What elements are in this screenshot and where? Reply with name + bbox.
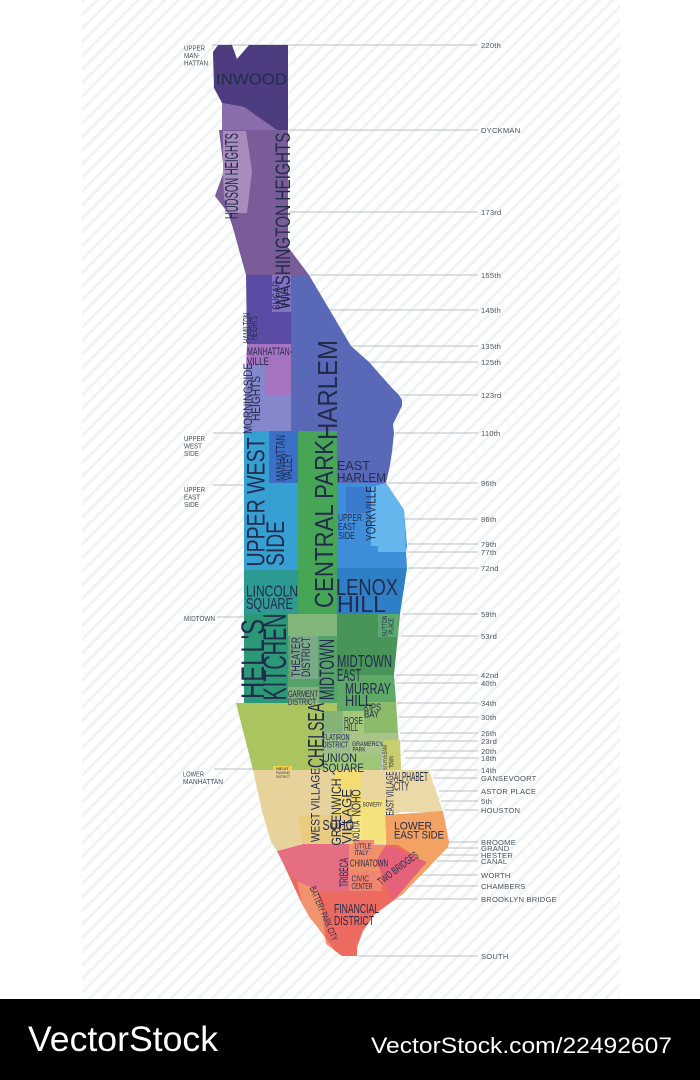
svg-text:WEST VILLAGE: WEST VILLAGE [310, 768, 323, 842]
svg-text:59th: 59th [481, 610, 497, 619]
svg-text:DYCKMAN: DYCKMAN [481, 126, 520, 135]
svg-text:SIDE: SIDE [184, 451, 199, 458]
svg-text:INWOOD: INWOOD [216, 72, 287, 89]
svg-text:EAST: EAST [184, 495, 201, 502]
svg-text:TRIBECA: TRIBECA [337, 858, 351, 887]
svg-text:SQUARE: SQUARE [322, 761, 364, 775]
svg-text:30th: 30th [481, 713, 497, 722]
svg-text:TOWN: TOWN [389, 756, 396, 768]
svg-text:72nd: 72nd [481, 564, 499, 573]
svg-text:SQUARE: SQUARE [246, 596, 293, 613]
svg-text:110th: 110th [481, 429, 500, 438]
svg-text:BAY: BAY [364, 709, 379, 721]
svg-text:VectorStock.com/22492607: VectorStock.com/22492607 [371, 1033, 672, 1058]
svg-text:CHAMBERS: CHAMBERS [481, 882, 526, 891]
svg-text:96th: 96th [481, 479, 497, 488]
svg-text:EAST VILLAGE: EAST VILLAGE [385, 772, 397, 816]
svg-text:SIDE: SIDE [262, 521, 290, 566]
svg-text:VALLEY: VALLEY [280, 453, 295, 480]
svg-text:HUDSON HEIGHTS: HUDSON HEIGHTS [222, 133, 242, 219]
svg-text:HARLEM: HARLEM [337, 470, 386, 485]
svg-text:BROOKLYN BRIDGE: BROOKLYN BRIDGE [481, 895, 557, 904]
svg-text:ITALY: ITALY [355, 848, 369, 857]
svg-text:HOUSTON: HOUSTON [481, 806, 520, 815]
svg-text:HEIGHTS: HEIGHTS [249, 316, 260, 340]
svg-text:86th: 86th [481, 515, 497, 524]
svg-text:23rd: 23rd [481, 737, 497, 746]
svg-text:BOWERY: BOWERY [363, 803, 382, 809]
svg-text:HATTAN: HATTAN [184, 61, 208, 68]
svg-text:UPPER: UPPER [184, 46, 205, 53]
svg-text:DISTRICT: DISTRICT [276, 774, 290, 779]
svg-text:53rd: 53rd [481, 632, 497, 641]
svg-text:HILL: HILL [280, 286, 291, 306]
svg-text:PLACE: PLACE [387, 618, 396, 634]
svg-text:CHINATOWN: CHINATOWN [350, 859, 388, 870]
svg-text:SOUTH: SOUTH [481, 952, 509, 961]
svg-text:18th: 18th [481, 754, 497, 763]
svg-text:HARLEM: HARLEM [312, 340, 343, 440]
svg-text:HILL: HILL [337, 591, 386, 617]
svg-text:UPPER: UPPER [184, 436, 205, 443]
svg-text:LOWER: LOWER [183, 772, 204, 779]
svg-text:DISTRICT: DISTRICT [301, 637, 313, 677]
svg-text:CANAL: CANAL [481, 857, 507, 866]
svg-text:77th: 77th [481, 548, 497, 557]
svg-text:MIDTOWN: MIDTOWN [184, 616, 215, 623]
svg-text:GANSEVOORT: GANSEVOORT [481, 774, 537, 783]
svg-text:173rd: 173rd [481, 208, 501, 217]
svg-text:123rd: 123rd [481, 391, 501, 400]
svg-text:CENTER: CENTER [352, 882, 373, 891]
svg-text:YORKVILLE: YORKVILLE [363, 486, 379, 541]
svg-text:40th: 40th [481, 679, 497, 688]
svg-text:NOLITA: NOLITA [352, 821, 363, 842]
svg-text:MANHATTAN: MANHATTAN [183, 779, 223, 786]
svg-text:DISTRICT: DISTRICT [334, 914, 374, 928]
svg-text:KITCHEN: KITCHEN [257, 614, 293, 701]
svg-text:EAST SIDE: EAST SIDE [394, 830, 444, 842]
svg-text:WORTH: WORTH [481, 871, 511, 880]
svg-text:135th: 135th [481, 342, 501, 351]
svg-text:34th: 34th [481, 699, 497, 708]
svg-text:SIDE: SIDE [184, 502, 199, 509]
svg-text:SOHO: SOHO [323, 818, 355, 834]
svg-text:SIDE: SIDE [338, 531, 355, 542]
svg-text:MAN-: MAN- [184, 53, 201, 60]
svg-text:220th: 220th [481, 41, 501, 50]
svg-text:VectorStock: VectorStock [28, 1020, 219, 1059]
svg-text:MIDTOWN: MIDTOWN [316, 639, 339, 700]
svg-text:145th: 145th [481, 306, 501, 315]
svg-text:5th: 5th [481, 797, 492, 806]
svg-text:NOHO: NOHO [350, 789, 364, 816]
svg-text:UPPER: UPPER [184, 487, 205, 494]
svg-text:125th: 125th [481, 358, 501, 367]
svg-text:ASTOR PLACE: ASTOR PLACE [481, 787, 536, 796]
svg-text:CENTRAL PARK: CENTRAL PARK [309, 439, 339, 608]
svg-text:WEST: WEST [184, 444, 203, 451]
svg-text:HEIGHTS: HEIGHTS [251, 376, 263, 421]
svg-text:DISTRICT: DISTRICT [323, 741, 349, 750]
svg-text:155th: 155th [481, 271, 501, 280]
